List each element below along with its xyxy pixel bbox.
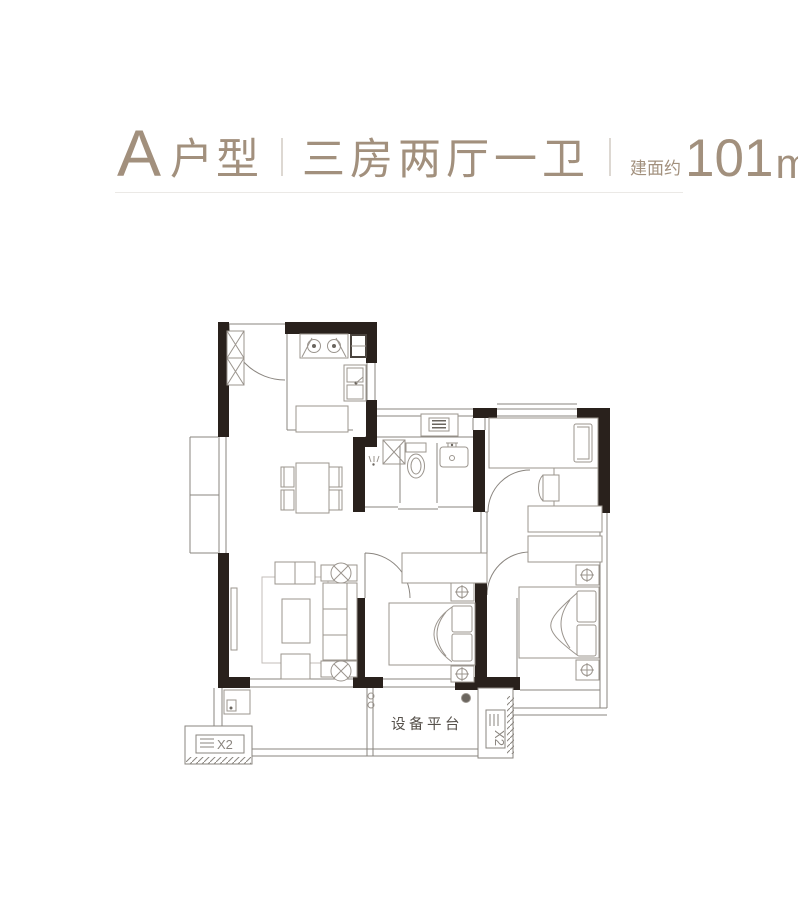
fridge-icon (351, 335, 366, 357)
nightstand-lamp-icon (576, 565, 599, 585)
ac-platform-left: X2 (185, 726, 252, 764)
toilet-icon (406, 443, 426, 478)
ac-platform-right: X2 (478, 688, 514, 758)
living-room (231, 562, 357, 681)
plant-icon (331, 563, 351, 583)
bed (519, 587, 599, 658)
washbasin-icon (440, 443, 468, 467)
dining-table (281, 463, 342, 513)
wardrobe (528, 536, 602, 562)
kitchen-sink-icon (344, 365, 366, 401)
kitchen-cabinet (296, 406, 348, 432)
nightstand-lamp-icon (451, 666, 474, 682)
bedroom-top-right (489, 418, 598, 506)
ottoman (281, 654, 310, 679)
balcony (224, 690, 250, 714)
wardrobe (402, 553, 487, 583)
bedroom3-door-arc (488, 470, 530, 512)
tv-icon (231, 588, 237, 650)
nightstand-lamp-icon (576, 660, 599, 680)
coffee-table (282, 599, 310, 643)
equipment-platform-label: 设备平台 (391, 716, 463, 733)
equipment-platform: 设备平台 (368, 693, 471, 733)
bathroom (369, 440, 468, 478)
kitchen (296, 334, 366, 432)
nightstand-lamp-icon (451, 583, 474, 601)
floorplan: 设备平台 X2 X2 (0, 0, 798, 900)
duct-vent (421, 414, 458, 436)
stove-icon (300, 334, 348, 358)
plant-icon (331, 661, 351, 681)
shoe-cabinet (227, 331, 244, 385)
bedroom-master (519, 506, 602, 680)
wardrobe (528, 506, 602, 532)
bed (489, 418, 598, 468)
water-heater (224, 690, 250, 714)
bed (389, 603, 475, 665)
ac-count-label: X2 (217, 737, 233, 752)
chair (539, 475, 560, 501)
console-table (275, 562, 315, 584)
ac-count-label: X2 (492, 730, 507, 746)
desk (554, 468, 598, 506)
bedroom-middle (389, 553, 487, 682)
